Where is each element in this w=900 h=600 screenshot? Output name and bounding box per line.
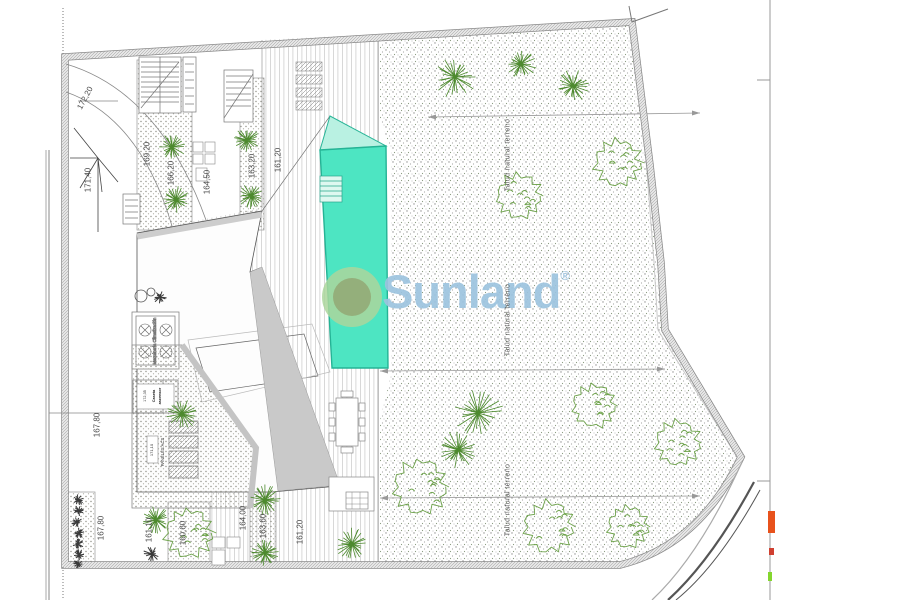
edge-color-mark [769,548,774,555]
sunland-watermark: Sunland® [382,268,569,315]
solar-panels-label: PANELES ACS [160,438,165,467]
sunland-logo-circle [322,267,382,327]
edge-color-mark [768,572,772,581]
pool-steps [320,176,342,202]
registered-trademark-symbol: ® [560,268,569,283]
outdoor-kitchen [329,477,374,511]
sunland-watermark-text: Sunland [382,265,560,318]
palm-tree-symbol [143,507,167,534]
pool [320,116,388,368]
edge-marks-layer [768,511,775,581]
caseta-cota-label: 172,35 [143,390,147,402]
caseta-name-line2: ascensor [158,387,162,404]
solar-cota-label: 171,10 [149,443,154,456]
caseta-box: 172,35 Caseta ascensor [133,380,178,413]
site-plan: Maquinaria Climatización PANELES ACS 171… [0,0,900,600]
caseta-name-line1: Caseta [152,389,156,402]
edge-color-mark [768,511,775,533]
shrub-tree-symbol [144,547,159,561]
